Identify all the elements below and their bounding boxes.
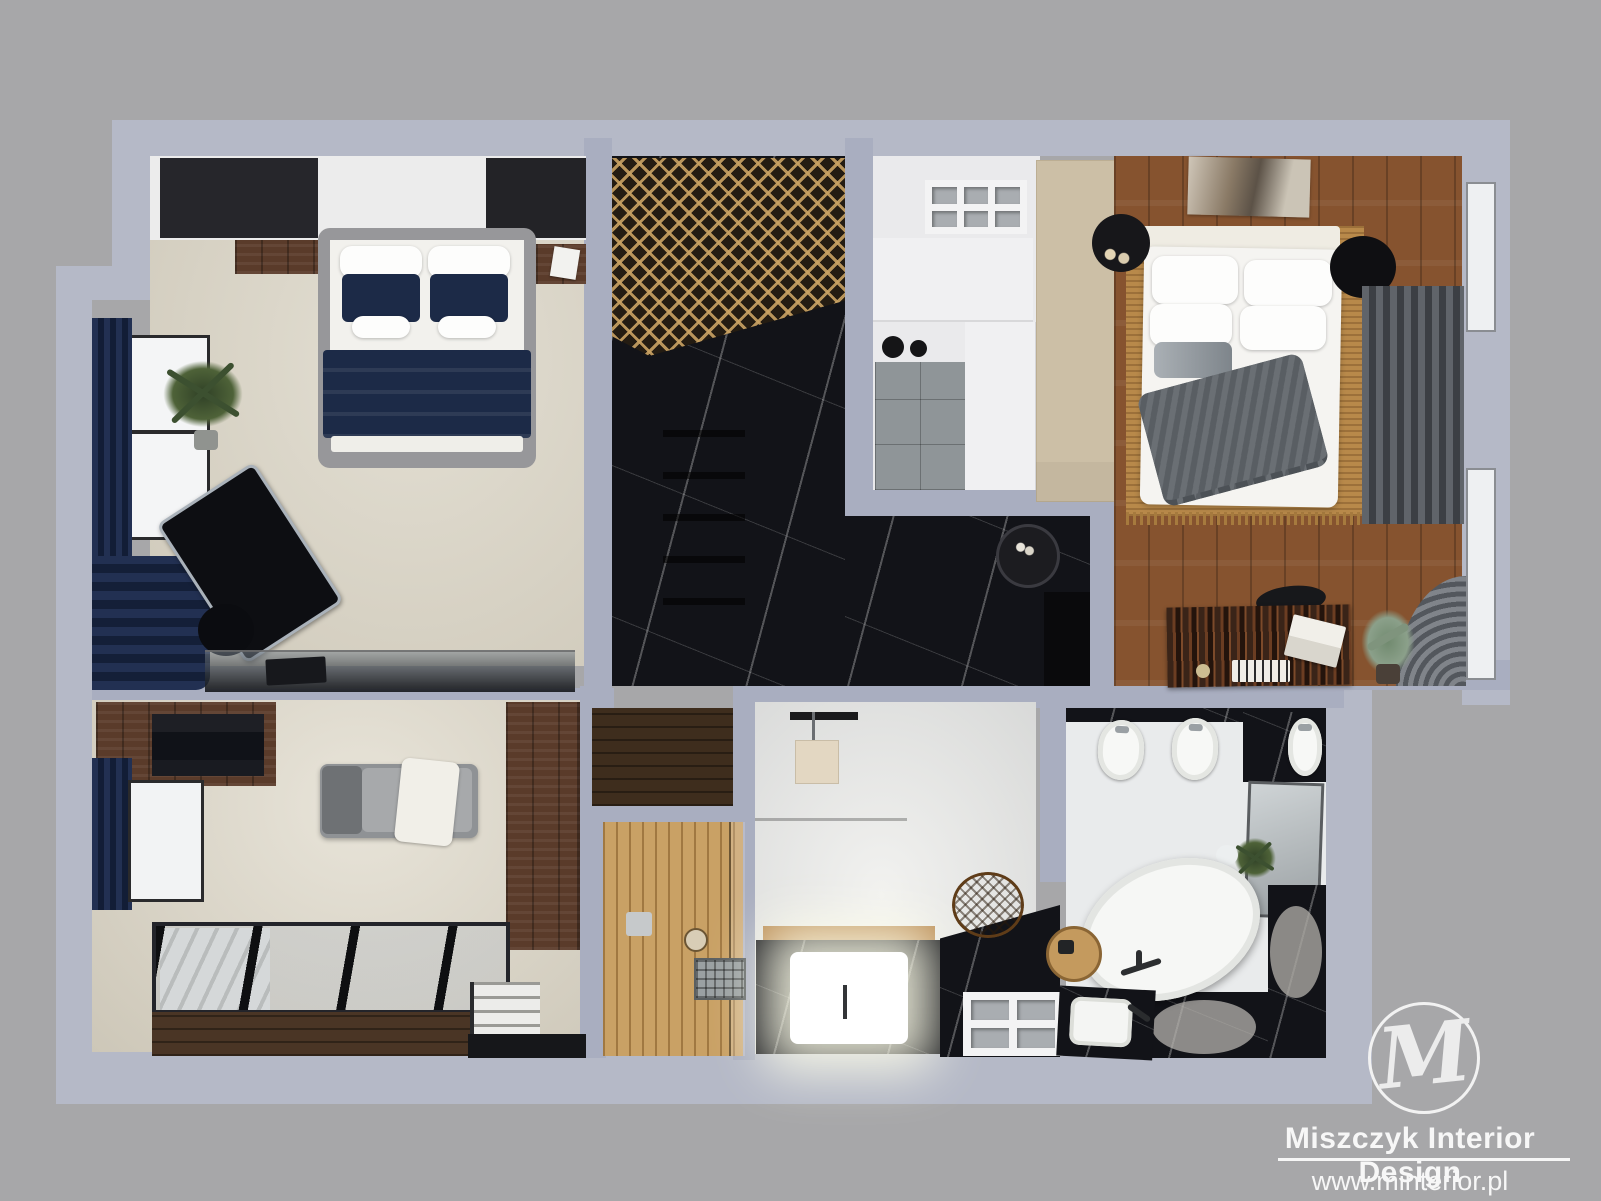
stair-mat-black: [468, 1034, 586, 1058]
cushion-small-left: [352, 316, 410, 338]
cubby-cell: [932, 211, 957, 228]
kitchen-tile-floor: [875, 362, 967, 490]
stone-oval-bottom: [1152, 1000, 1256, 1054]
cubby-cell: [964, 211, 989, 228]
cube-cell: [1017, 1028, 1055, 1048]
pillow-navy-right: [430, 274, 508, 322]
curtain-gray-pleated: [1362, 286, 1464, 524]
brand-logo-monogram: M: [1368, 1002, 1480, 1114]
magazine: [550, 246, 580, 280]
glass-desk: [205, 650, 575, 692]
bed-throw-navy: [323, 350, 531, 438]
wooden-tray: [1046, 926, 1102, 982]
cube-cell: [971, 1000, 1009, 1020]
rug-fringe: [1126, 512, 1364, 525]
table-trinkets: [1014, 540, 1036, 558]
floor-plan-render: M Miszczyk Interior Design www.minterior…: [0, 0, 1601, 1201]
cubby-cell: [995, 187, 1020, 204]
wardrobe-drawer-slat-2: [663, 472, 745, 479]
spa-tub-faucet: [843, 985, 847, 1019]
wall-wardrobe-lower: [1088, 486, 1116, 696]
cubby-cell: [964, 187, 989, 204]
cubby-cell: [995, 211, 1020, 228]
spa-tub-glow: [790, 952, 908, 1044]
pillow-navy-left: [342, 274, 420, 322]
cabinet-glass-front: [152, 714, 264, 776]
sauna-heater: [694, 958, 746, 1000]
sauna-bucket: [626, 912, 652, 936]
brand-website: www.minterior.pl: [1240, 1166, 1580, 1197]
staircase-steps: [470, 982, 540, 1038]
cooktop-burner-small: [910, 340, 927, 357]
chaise-throw-white: [394, 757, 460, 847]
wardrobe-drawer-slat-3: [663, 514, 745, 521]
sauna-round-light: [684, 928, 708, 952]
fixture-corner: [1288, 718, 1322, 776]
cube-cell: [971, 1028, 1009, 1048]
wall-corridor-left: [584, 138, 612, 698]
cooktop-burner-large: [882, 336, 904, 358]
vanity-sink: [1069, 996, 1133, 1047]
sauna-entry-divider: [592, 806, 742, 822]
wardrobe-drawer-slat-5: [663, 598, 745, 605]
wall-top: [112, 120, 1510, 156]
sauna-door-glass: [729, 822, 745, 1056]
cube-shelf: [963, 992, 1063, 1056]
wall-corridor-right: [845, 138, 873, 510]
window-lounge: [128, 780, 204, 902]
sauna-entry-floor: [592, 708, 733, 806]
wardrobe-drawer-slat-1: [663, 430, 745, 437]
monogram-letter: M: [1373, 1000, 1476, 1108]
wicker-basket: [952, 872, 1024, 938]
eucalyptus-pot: [1376, 664, 1400, 684]
stone-oval-right: [1270, 906, 1322, 998]
pillow-1: [1152, 256, 1238, 304]
dark-console: [1044, 592, 1090, 686]
desk-knob: [1196, 664, 1210, 678]
pendant-rail: [790, 712, 858, 720]
wall-left-upper: [112, 120, 150, 280]
wardrobe-dark-left: [160, 158, 318, 238]
window-master-bottom: [1466, 468, 1496, 680]
dried-flowers: [1100, 244, 1134, 270]
pillow-3: [1150, 304, 1232, 346]
cubby-shelf: [925, 180, 1027, 234]
headboard-shelf-left: [235, 240, 325, 274]
cushion-small-right: [438, 316, 496, 338]
pillow-2: [1244, 260, 1332, 306]
glass-partition-line: [755, 818, 907, 821]
cube-cell: [1017, 1000, 1055, 1020]
wall-right-lower: [1326, 685, 1372, 1060]
stair-front-panel: [152, 1012, 472, 1056]
pendant-panel-beige: [795, 740, 839, 784]
wall-bath-divider: [1040, 686, 1066, 882]
brand-divider-line: [1278, 1158, 1570, 1161]
laptop: [265, 656, 326, 685]
wall-artwork: [1187, 156, 1310, 217]
beige-wardrobe: [1036, 160, 1116, 502]
wardrobe-dark-right: [486, 158, 586, 238]
wall-left-main: [56, 266, 92, 1058]
floor-lamp: [198, 604, 254, 656]
glass-skylight: [152, 922, 510, 1014]
window-master-top: [1466, 182, 1496, 332]
wardrobe-drawer-slat-4: [663, 556, 745, 563]
tray-items: [1058, 940, 1074, 954]
cubby-cell: [932, 187, 957, 204]
bed-sheet-end: [331, 436, 523, 452]
white-cabinet: [873, 238, 1033, 322]
plant-pot: [194, 430, 218, 450]
room-sauna: [603, 822, 743, 1056]
curtain-navy-lounge: [92, 758, 132, 910]
book-stack: [1232, 660, 1290, 682]
tall-wardrobe: [506, 702, 580, 950]
chaise-headrest: [322, 766, 362, 834]
plant-icon: [148, 348, 258, 440]
tub-faucet-spout: [1136, 950, 1142, 970]
wall-bottom: [56, 1052, 1372, 1104]
tall-white-column: [965, 322, 1037, 490]
pillow-4: [1240, 306, 1326, 350]
